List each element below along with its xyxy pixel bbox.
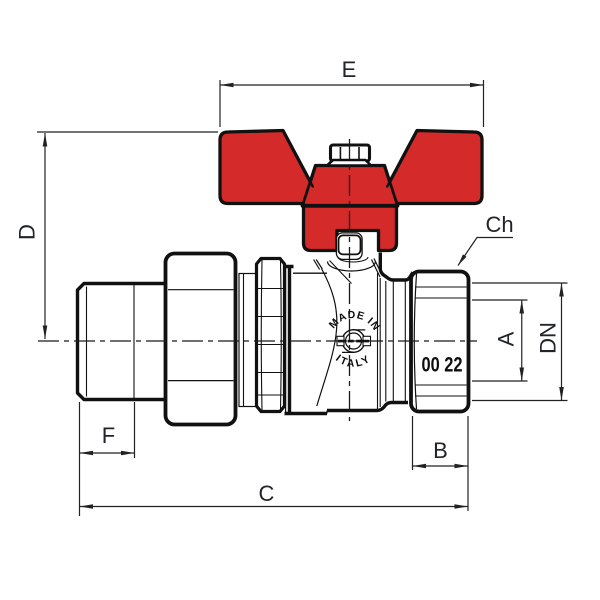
svg-text:DN: DN	[536, 322, 561, 354]
svg-text:F: F	[102, 423, 115, 448]
svg-text:E: E	[342, 57, 357, 82]
svg-text:Ch: Ch	[485, 212, 513, 237]
svg-text:00 22: 00 22	[422, 354, 463, 377]
svg-text:C: C	[259, 481, 275, 506]
svg-text:A: A	[494, 331, 519, 346]
svg-text:D: D	[15, 224, 40, 240]
svg-text:B: B	[433, 438, 448, 463]
